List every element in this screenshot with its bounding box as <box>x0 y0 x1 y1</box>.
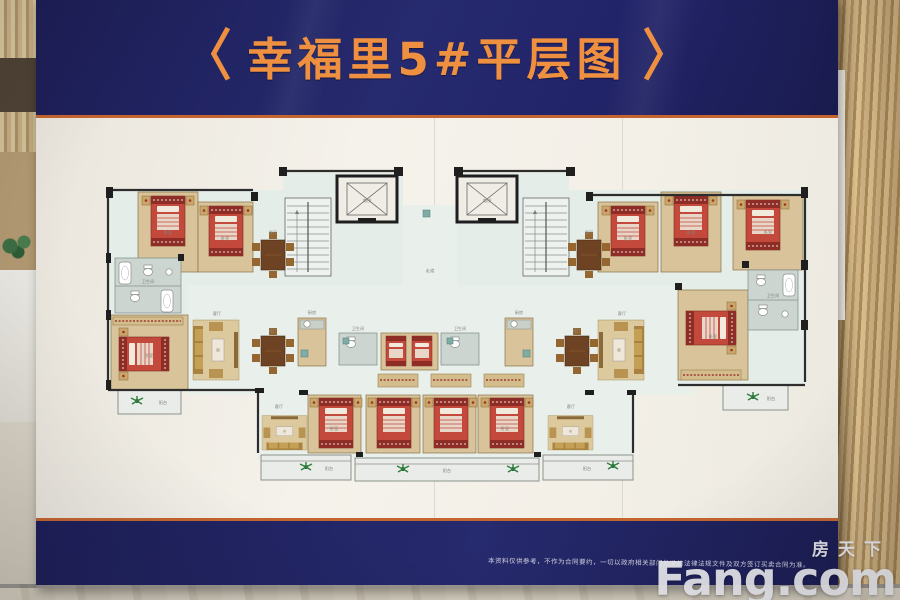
svg-text:客厅: 客厅 <box>618 310 626 317</box>
svg-text:卧室: 卧室 <box>764 229 772 236</box>
svg-text:阳台: 阳台 <box>583 465 591 472</box>
svg-text:卧室: 卧室 <box>709 333 717 340</box>
svg-text:厨房: 厨房 <box>515 309 523 316</box>
interior-floor <box>0 422 36 600</box>
svg-text:卧室: 卧室 <box>687 229 695 236</box>
white-counter <box>0 270 36 422</box>
svg-text:餐厅: 餐厅 <box>573 327 581 334</box>
tan-wall <box>0 152 36 232</box>
background-left-interior <box>0 0 36 600</box>
svg-text:阳台: 阳台 <box>443 467 451 474</box>
floorplan-display-board: 〈 幸福里5#平层图 〉 <box>36 0 838 588</box>
svg-text:餐厅: 餐厅 <box>269 229 277 236</box>
svg-text:厨房: 厨房 <box>308 309 316 316</box>
wood-column-shading <box>838 0 900 600</box>
svg-text:阳台: 阳台 <box>767 395 775 402</box>
svg-text:阳台: 阳台 <box>159 399 167 406</box>
wood-slats-mid <box>0 112 36 152</box>
background-wood-column <box>838 0 900 600</box>
svg-text:卧室: 卧室 <box>624 235 632 242</box>
wood-slats-top <box>0 0 36 58</box>
title-bracket-right: 〉 <box>643 28 691 83</box>
board-body: 卧室 卧室 卧室 卧室 卧室 卧室 卧室 卧室 卧室 客厅 客厅 客厅 客厅 餐… <box>36 118 838 518</box>
potted-plant <box>0 232 36 270</box>
svg-text:卫生间: 卫生间 <box>454 325 467 332</box>
svg-text:阳台: 阳台 <box>325 465 333 472</box>
svg-text:走道: 走道 <box>426 267 435 274</box>
svg-text:卫生间: 卫生间 <box>767 292 780 299</box>
fang-watermark: 房天下 Fang.com <box>654 542 896 600</box>
photo-scene: 〈 幸福里5#平层图 〉 <box>0 0 900 600</box>
svg-text:卧室: 卧室 <box>145 352 153 359</box>
svg-text:卧室: 卧室 <box>221 235 229 242</box>
board-header: 〈 幸福里5#平层图 〉 <box>36 0 838 118</box>
svg-text:餐厅: 餐厅 <box>585 229 593 236</box>
svg-text:电梯: 电梯 <box>483 197 491 204</box>
svg-text:客厅: 客厅 <box>567 403 575 410</box>
svg-text:卫生间: 卫生间 <box>352 325 365 332</box>
watermark-en: Fang.com <box>654 558 896 600</box>
svg-text:卧室: 卧室 <box>330 425 338 432</box>
title-text: 幸福里5#平层图 <box>247 23 626 88</box>
svg-text:卫生间: 卫生间 <box>142 278 155 285</box>
svg-text:卧室: 卧室 <box>501 425 509 432</box>
svg-text:餐厅: 餐厅 <box>269 327 277 334</box>
svg-text:卧室: 卧室 <box>164 229 172 236</box>
floor-plan: 卧室 卧室 卧室 卧室 卧室 卧室 卧室 卧室 卧室 客厅 客厅 客厅 客厅 餐… <box>93 150 808 515</box>
title-bracket-left: 〈 <box>183 28 231 83</box>
svg-text:客厅: 客厅 <box>275 403 283 410</box>
svg-text:客厅: 客厅 <box>213 310 221 317</box>
wall-sliver <box>838 70 845 320</box>
page-title: 〈 幸福里5#平层图 〉 <box>183 23 690 88</box>
dark-doorway <box>0 58 36 112</box>
right-stairs <box>523 198 569 276</box>
svg-text:电梯: 电梯 <box>363 197 371 204</box>
